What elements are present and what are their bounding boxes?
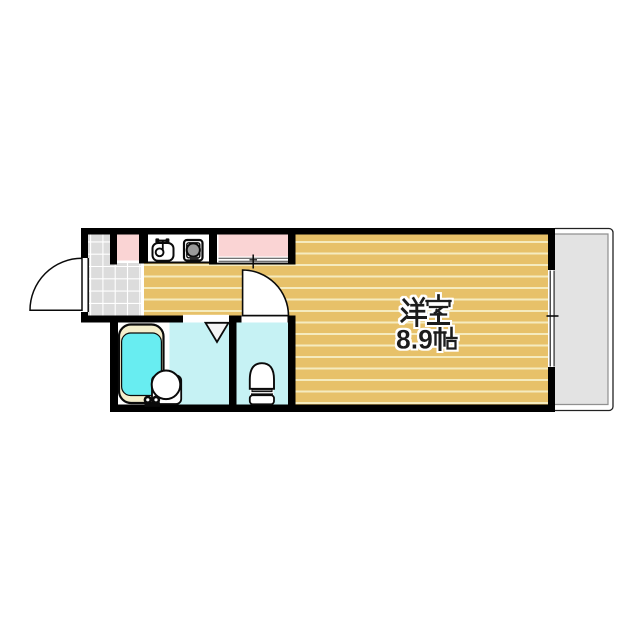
svg-text:8.9: 8.9 [396,325,433,355]
